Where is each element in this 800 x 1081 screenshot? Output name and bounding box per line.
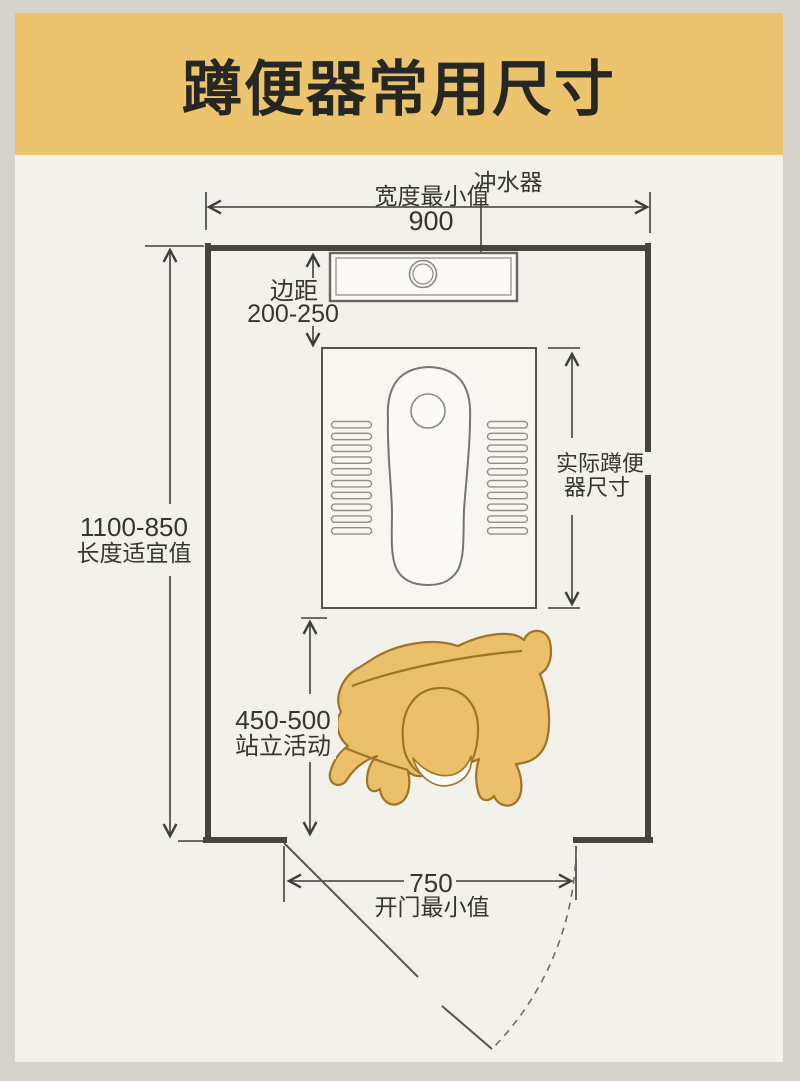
- page-title: 蹲便器常用尺寸: [182, 41, 616, 128]
- length-dim-value: 1100-850: [70, 514, 198, 541]
- pan-dim-label-line2: 器尺寸: [549, 476, 645, 499]
- length-dim-label: 长度适宜值: [66, 541, 202, 565]
- door-dim-label: 开门最小值: [357, 895, 507, 919]
- margin-dim-value: 200-250: [228, 301, 358, 327]
- standing-dim-value: 450-500: [228, 707, 338, 734]
- pan-dim-label-line1: 实际蹲便: [549, 452, 651, 475]
- title-banner: 蹲便器常用尺寸: [15, 13, 783, 155]
- width-dim-label: 宽度最小值: [357, 184, 507, 208]
- standing-dim-label: 站立活动: [230, 734, 336, 759]
- width-dim-value: 900: [381, 207, 481, 235]
